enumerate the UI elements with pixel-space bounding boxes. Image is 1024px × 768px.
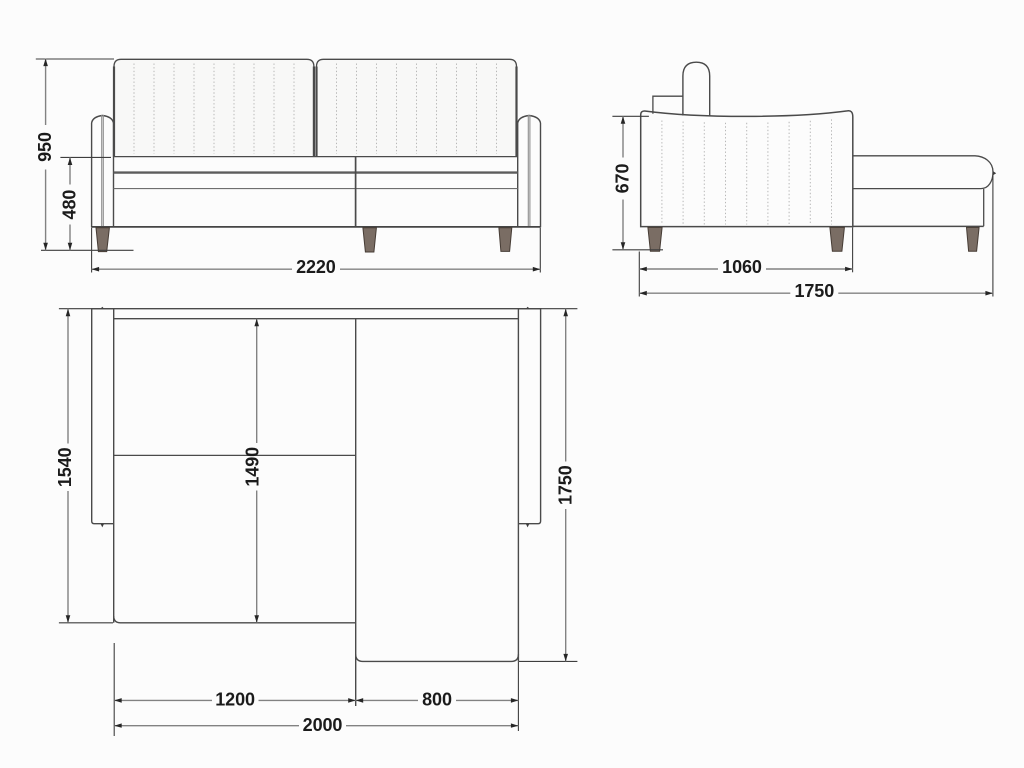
svg-text:1490: 1490 — [242, 447, 262, 487]
svg-text:1060: 1060 — [722, 257, 762, 277]
svg-text:800: 800 — [422, 689, 452, 709]
svg-text:1750: 1750 — [555, 465, 575, 505]
svg-text:1750: 1750 — [794, 281, 834, 301]
svg-text:670: 670 — [613, 164, 633, 194]
svg-text:1200: 1200 — [215, 689, 255, 709]
svg-text:2000: 2000 — [303, 715, 343, 735]
svg-text:2220: 2220 — [296, 257, 336, 277]
svg-text:1540: 1540 — [55, 447, 75, 487]
svg-text:480: 480 — [59, 190, 79, 220]
svg-text:950: 950 — [35, 132, 55, 162]
